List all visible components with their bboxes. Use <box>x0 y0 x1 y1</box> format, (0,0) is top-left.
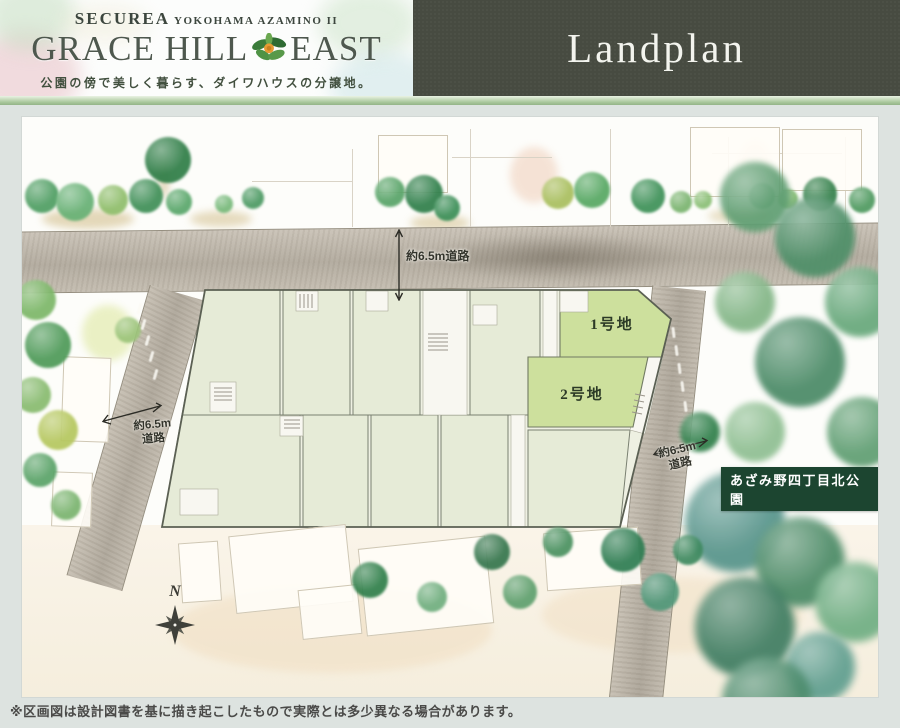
parcel-line <box>352 149 353 227</box>
tree-icon <box>115 317 141 343</box>
lot-2-label: 2号地 <box>560 385 604 403</box>
tree-icon <box>375 177 405 207</box>
disclaimer: ※区画図は設計図書を基に描き起こしたもので実際とは多少異なる場合があります。 <box>10 701 890 720</box>
lot-1-label: 1号地 <box>590 315 634 333</box>
tree-icon <box>775 197 855 277</box>
lot-block: 1号地 2号地 <box>152 282 702 537</box>
tree-icon <box>56 183 94 221</box>
tree-icon <box>543 527 573 557</box>
tree-icon <box>25 322 71 368</box>
header: SECUREA YOKOHAMA AZAMINO II GRACE HILL E… <box>0 0 900 96</box>
parcel-line <box>252 181 352 182</box>
tree-icon <box>755 317 845 407</box>
tree-icon <box>673 535 703 565</box>
tagline: 公園の傍で美しく暮らす、ダイワハウスの分譲地。 <box>0 74 413 91</box>
tree-icon <box>542 177 574 209</box>
tree-icon <box>849 187 875 213</box>
brand-subtitle: YOKOHAMA AZAMINO II <box>174 15 338 27</box>
project-title: GRACE HILL EAST <box>0 28 413 70</box>
tree-icon <box>474 534 510 570</box>
lot <box>441 415 508 527</box>
parcel-line <box>470 129 471 227</box>
tree-icon <box>166 189 192 215</box>
tree-icon <box>434 195 460 221</box>
brand-name: SECUREA <box>75 9 170 28</box>
tree-icon <box>725 402 785 462</box>
landplan-banner: Landplan <box>413 0 900 96</box>
road-width-arrow-north <box>393 229 405 301</box>
road-label-north: 約6.5m道路 <box>406 249 469 263</box>
park-name-badge: あざみ野四丁目北公園 <box>721 467 878 511</box>
lot <box>371 415 438 527</box>
brand-top-line: SECUREA YOKOHAMA AZAMINO II <box>0 9 413 29</box>
site-plan-map: 1号地 2号地 約6.5m道路 約6.5m 道路 約6.5m 道路 あざみ野四丁… <box>22 117 878 697</box>
project-title-left: GRACE HILL <box>31 29 248 69</box>
tree-icon <box>503 575 537 609</box>
tree-icon <box>715 272 775 332</box>
brand-panel: SECUREA YOKOHAMA AZAMINO II GRACE HILL E… <box>0 0 413 96</box>
page-title: Landplan <box>567 24 746 72</box>
tree-icon <box>22 280 56 320</box>
road-label-west: 約6.5m 道路 <box>119 416 187 449</box>
tree-icon <box>145 137 191 183</box>
tree-icon <box>22 377 51 413</box>
tree-icon <box>242 187 264 209</box>
tree-icon <box>417 582 447 612</box>
tree-icon <box>352 562 388 598</box>
compass-rose-icon: N <box>152 581 198 651</box>
building-outline <box>298 584 363 640</box>
flower-icon <box>251 33 287 65</box>
parcel-line <box>452 157 552 158</box>
tree-icon <box>694 191 712 209</box>
tree-icon <box>215 195 233 213</box>
tree-icon <box>129 179 163 213</box>
tree-icon <box>25 179 59 213</box>
lot <box>528 430 630 527</box>
parcel-line <box>610 129 611 227</box>
tree-icon <box>631 179 665 213</box>
tree-icon <box>641 573 679 611</box>
watercolor-patch <box>190 211 252 227</box>
tree-icon <box>51 490 81 520</box>
compass-north-label: N <box>168 583 182 600</box>
tree-icon <box>38 410 78 450</box>
project-title-right: EAST <box>290 29 382 69</box>
accent-strip <box>0 96 900 105</box>
tree-icon <box>601 528 645 572</box>
tree-icon <box>98 185 128 215</box>
lot <box>303 415 368 527</box>
tree-icon <box>574 172 610 208</box>
tree-icon <box>827 397 878 467</box>
tree-icon <box>23 453 57 487</box>
tree-icon <box>670 191 692 213</box>
